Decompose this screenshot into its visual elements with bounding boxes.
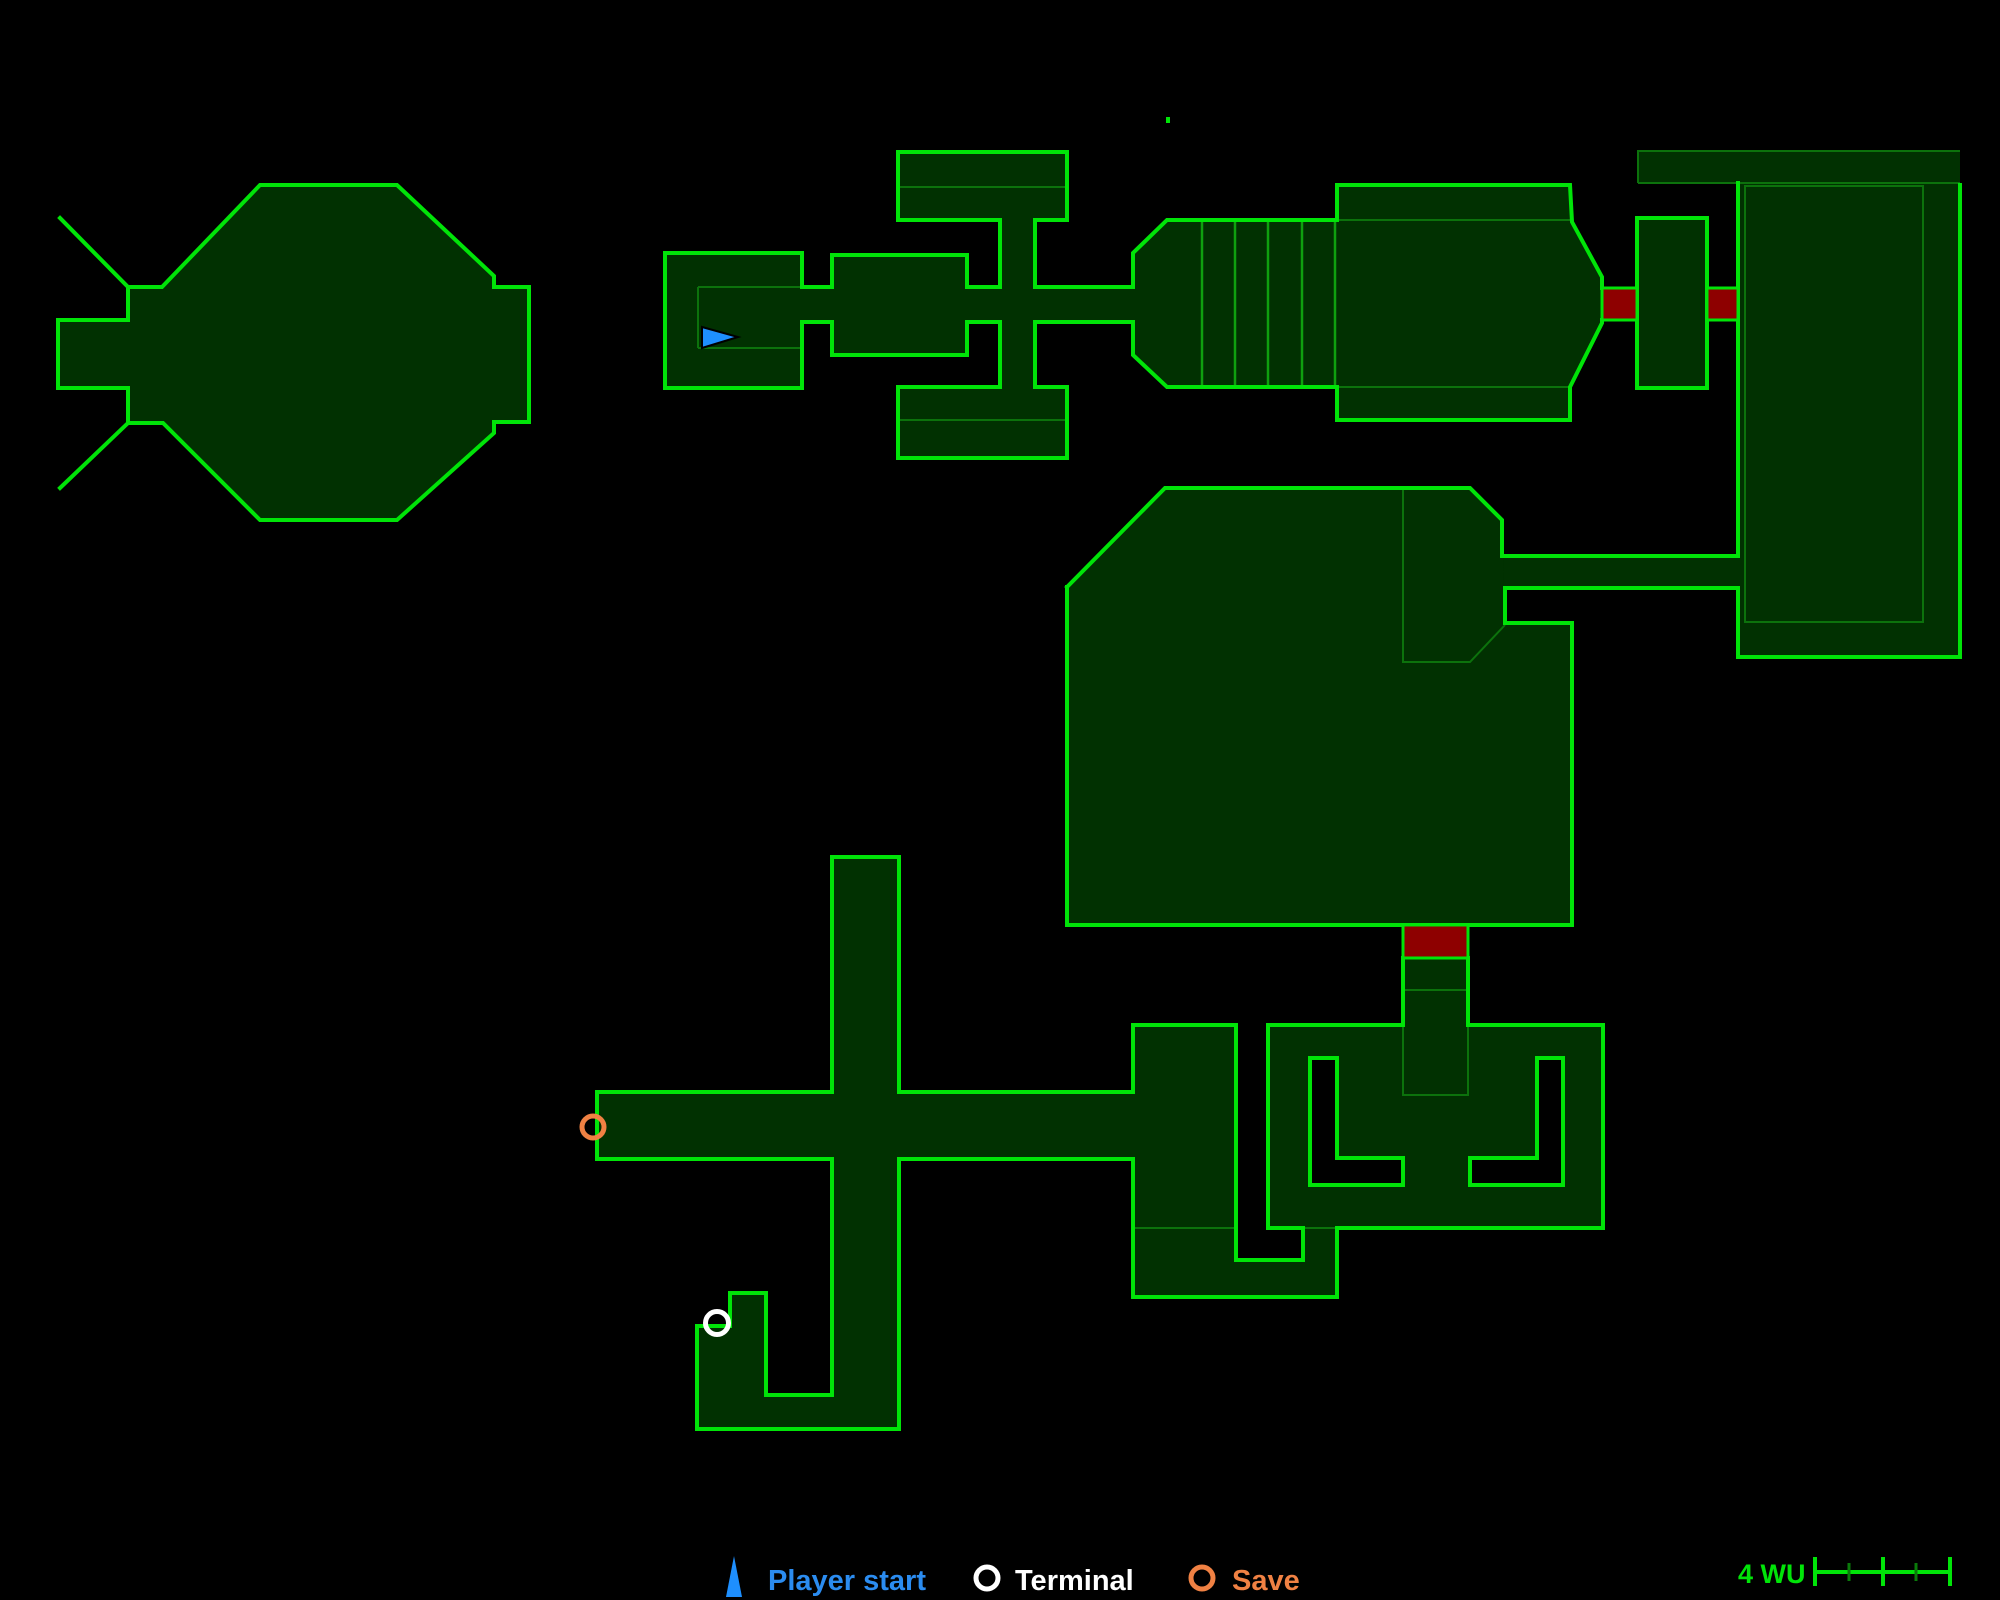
- corridor-mid: [967, 287, 1000, 322]
- cross-vertical: [1000, 220, 1035, 387]
- legend-player-start-label: Player start: [768, 1565, 926, 1597]
- door-airlock-tall: [1707, 288, 1738, 320]
- door-engine-airlock: [1602, 288, 1637, 320]
- airlock-room: [1637, 218, 1707, 388]
- scale-bar-label: 4 WU: [1738, 1559, 1806, 1589]
- mid-room: [832, 255, 967, 355]
- map-canvas: Player start Terminal Save 4 WU: [0, 0, 2000, 1600]
- shaft-below-door: [1403, 958, 1468, 1025]
- cross-bottom-bar: [898, 387, 1067, 458]
- big-hall: [1067, 488, 1572, 925]
- automap-viewer: Player start Terminal Save 4 WU: [0, 0, 2000, 1600]
- corridor-to-engine: [1035, 287, 1133, 322]
- horizontal-corridor: [597, 1092, 1133, 1159]
- legend-save-label: Save: [1232, 1565, 1300, 1597]
- corridor-poly-tall: [1502, 556, 1738, 588]
- start-room: [665, 253, 802, 388]
- corridor-start: [802, 287, 832, 322]
- map-speck: [1166, 117, 1170, 123]
- door-hall-shaft: [1403, 925, 1468, 958]
- legend-terminal-label: Terminal: [1015, 1565, 1134, 1597]
